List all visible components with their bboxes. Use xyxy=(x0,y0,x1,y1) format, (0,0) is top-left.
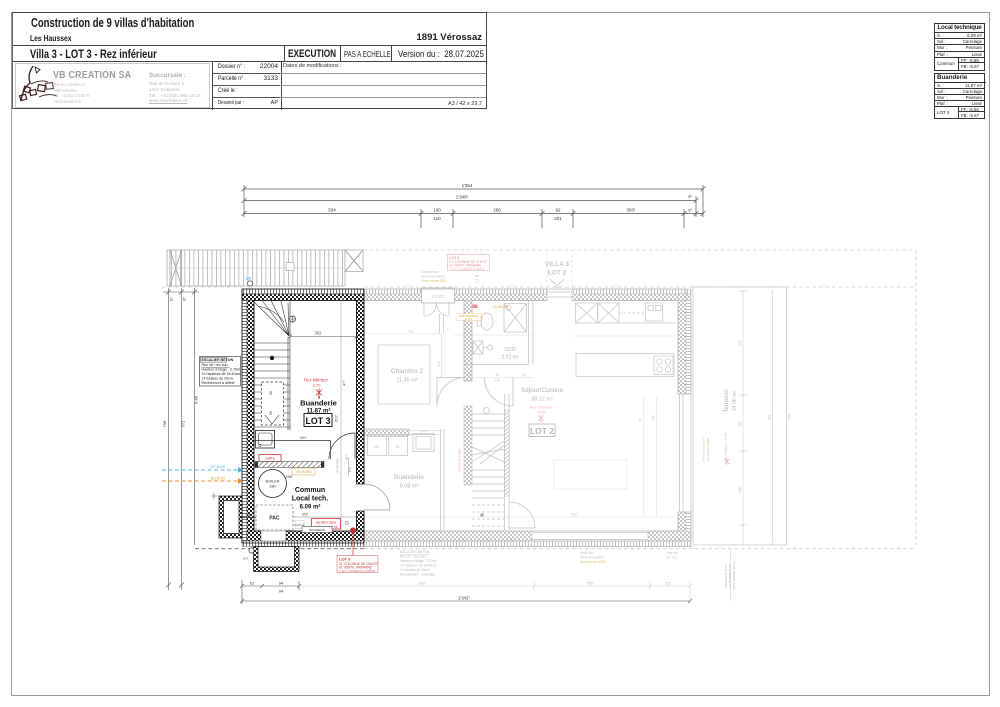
svg-text:26: 26 xyxy=(246,513,250,517)
svg-text:6.48: 6.48 xyxy=(194,395,199,404)
svg-text:-5.55: -5.55 xyxy=(311,383,321,388)
svg-text:51: 51 xyxy=(250,581,255,586)
svg-text:110: 110 xyxy=(433,216,441,221)
svg-text:87: 87 xyxy=(170,297,174,301)
svg-text:Rez inf / rez sup :: Rez inf / rez sup : xyxy=(202,363,230,367)
svg-text:TOUT VENANT 72 cm: TOUT VENANT 72 cm xyxy=(732,561,736,591)
svg-text:vol. à 21: vol. à 21 xyxy=(666,556,678,560)
svg-text:201: 201 xyxy=(554,216,562,221)
svg-text:511: 511 xyxy=(768,414,772,420)
svg-text:14 foulées de 26cm: 14 foulées de 26cm xyxy=(400,568,430,572)
svg-text:94: 94 xyxy=(279,589,284,594)
svg-text:01 CHUTE EU/EV: 01 CHUTE EU/EV xyxy=(458,449,462,472)
svg-text:758: 758 xyxy=(162,420,167,427)
svg-text:Revêtement : carrelage: Revêtement : carrelage xyxy=(400,573,435,577)
svg-text:Buanderie: Buanderie xyxy=(300,399,337,408)
svg-text:EU Ø125: EU Ø125 xyxy=(211,477,225,481)
svg-text:Commun: Commun xyxy=(295,487,325,494)
svg-text:216: 216 xyxy=(494,379,500,383)
svg-text:355: 355 xyxy=(587,582,593,586)
svg-text:LOT 3: LOT 3 xyxy=(339,557,351,562)
svg-text:1 au 1 fondation à définir: 1 au 1 fondation à définir xyxy=(339,569,376,573)
svg-text:1 au 1 fondation à définir: 1 au 1 fondation à définir xyxy=(450,267,486,271)
svg-text:24.00 m²: 24.00 m² xyxy=(732,391,738,411)
svg-text:S-US: S-US xyxy=(420,429,427,433)
svg-text:1'354: 1'354 xyxy=(462,183,473,188)
svg-text:100: 100 xyxy=(433,208,441,213)
svg-text:310: 310 xyxy=(437,361,441,367)
svg-text:LOT 2: LOT 2 xyxy=(530,426,554,436)
svg-text:302: 302 xyxy=(315,331,323,336)
svg-text:Rez inférieur -5.55: Rez inférieur -5.55 xyxy=(724,433,728,461)
svg-text:21.7: 21.7 xyxy=(345,454,349,460)
svg-text:PAC: PAC xyxy=(269,516,280,522)
svg-text:NOURRICE: NOURRICE xyxy=(309,528,325,532)
svg-text:SL: SL xyxy=(396,444,402,449)
svg-text:Local tech.: Local tech. xyxy=(292,496,329,503)
svg-text:280: 280 xyxy=(269,485,275,489)
svg-text:ESCALIER BETON: ESCALIER BETON xyxy=(202,358,234,362)
svg-text:6.09 m²: 6.09 m² xyxy=(300,504,321,511)
svg-text:382: 382 xyxy=(652,415,656,421)
svg-text:Rez inf - rez sup :: Rez inf - rez sup : xyxy=(400,555,427,559)
svg-text:771: 771 xyxy=(181,420,186,427)
svg-text:1'3437: 1'3437 xyxy=(458,596,470,601)
svg-text:94: 94 xyxy=(279,581,284,586)
svg-text:602: 602 xyxy=(334,414,339,421)
svg-text:Store banne 4500: Store banne 4500 xyxy=(580,560,606,564)
svg-text:LOT 3: LOT 3 xyxy=(306,416,331,427)
svg-text:4.0: 4.0 xyxy=(522,373,527,377)
svg-text:265: 265 xyxy=(738,487,742,493)
svg-text:3031: 3031 xyxy=(626,208,636,213)
svg-text:ML: ML xyxy=(374,444,380,449)
svg-text:2.92 m²: 2.92 m² xyxy=(502,355,519,361)
svg-text:VS 25/250: VS 25/250 xyxy=(296,470,312,474)
svg-text:35.12 m²: 35.12 m² xyxy=(531,397,553,403)
svg-text:115: 115 xyxy=(665,582,671,586)
svg-text:EP: EP xyxy=(475,274,479,278)
svg-text:15 hauteurs de 18.40cm: 15 hauteurs de 18.40cm xyxy=(202,372,241,376)
svg-text:Séjour/Cuisine: Séjour/Cuisine xyxy=(521,387,564,394)
svg-text:534: 534 xyxy=(328,208,336,213)
svg-text:266: 266 xyxy=(493,208,501,213)
svg-text:E: E xyxy=(266,296,269,301)
svg-text:216: 216 xyxy=(348,467,352,472)
svg-text:coffre: coffre xyxy=(265,456,276,461)
svg-text:Stores à remonter: Stores à remonter xyxy=(702,438,706,462)
svg-text:87: 87 xyxy=(183,297,187,301)
svg-text:Store à remonter: Store à remonter xyxy=(421,275,446,279)
svg-text:371: 371 xyxy=(467,373,473,377)
svg-text:Store banne 4500: Store banne 4500 xyxy=(706,438,710,462)
svg-text:85: 85 xyxy=(688,209,692,213)
svg-text:ESCALIER BETON: ESCALIER BETON xyxy=(400,550,430,554)
svg-text:26: 26 xyxy=(269,391,273,395)
svg-text:302: 302 xyxy=(302,512,309,517)
svg-text:EP: EP xyxy=(243,556,249,561)
svg-text:202: 202 xyxy=(738,421,742,427)
svg-text:15 hauteurs de 18.40cm: 15 hauteurs de 18.40cm xyxy=(400,564,437,568)
svg-text:-5.55: -5.55 xyxy=(537,411,546,415)
svg-text:9.08 m²: 9.08 m² xyxy=(400,484,419,490)
svg-text:392: 392 xyxy=(300,435,307,440)
svg-text:Buanderie: Buanderie xyxy=(394,474,424,481)
svg-text:Hauteur d'étage : 2.76m: Hauteur d'étage : 2.76m xyxy=(202,368,240,372)
svg-text:VP 80/200: VP 80/200 xyxy=(336,459,340,473)
svg-text:1'3455: 1'3455 xyxy=(456,195,469,200)
svg-text:Cassette stv: Cassette stv xyxy=(421,270,439,274)
svg-text:26: 26 xyxy=(269,411,273,415)
svg-text:96: 96 xyxy=(639,418,643,422)
svg-text:E: E xyxy=(342,296,345,301)
svg-text:Terrasse: Terrasse xyxy=(724,389,730,413)
svg-text:477: 477 xyxy=(342,380,347,386)
svg-text:CS 120: CS 120 xyxy=(432,295,445,299)
svg-text:510: 510 xyxy=(571,513,577,517)
svg-text:202: 202 xyxy=(738,340,742,346)
svg-text:11.45 m²: 11.45 m² xyxy=(396,378,417,384)
svg-text:78: 78 xyxy=(495,373,499,377)
svg-text:1305: 1305 xyxy=(418,581,426,586)
svg-text:759: 759 xyxy=(788,414,792,420)
svg-text:Revêtement à définir: Revêtement à définir xyxy=(202,381,236,385)
svg-text:Store banne 4500: Store banne 4500 xyxy=(421,279,447,283)
svg-text:VS 25/125: VS 25/125 xyxy=(493,305,508,309)
svg-text:85: 85 xyxy=(688,195,692,199)
svg-text:LOT 2: LOT 2 xyxy=(548,270,567,277)
svg-text:Chambre 2: Chambre 2 xyxy=(391,368,424,375)
svg-text:Hauteur d'étage : 2.76m: Hauteur d'étage : 2.76m xyxy=(400,559,436,563)
svg-text:14 foulées de 26cm: 14 foulées de 26cm xyxy=(202,377,233,381)
svg-text:VILLA 3: VILLA 3 xyxy=(545,261,569,268)
svg-text:BOILER: BOILER xyxy=(266,480,280,484)
svg-text:EP Ø100: EP Ø100 xyxy=(211,465,225,469)
svg-text:SDD: SDD xyxy=(504,347,516,353)
svg-text:301: 301 xyxy=(408,330,414,334)
svg-text:th 8.5: th 8.5 xyxy=(465,317,473,321)
svg-text:Tête sto: Tête sto xyxy=(666,551,678,555)
svg-text:Store à remonter: Store à remonter xyxy=(580,556,605,560)
svg-text:Rez inférieur: Rez inférieur xyxy=(530,405,553,410)
svg-text:EP: EP xyxy=(246,276,252,281)
svg-text:Seuil Sto: Seuil Sto xyxy=(580,551,593,555)
svg-text:92: 92 xyxy=(555,208,561,213)
